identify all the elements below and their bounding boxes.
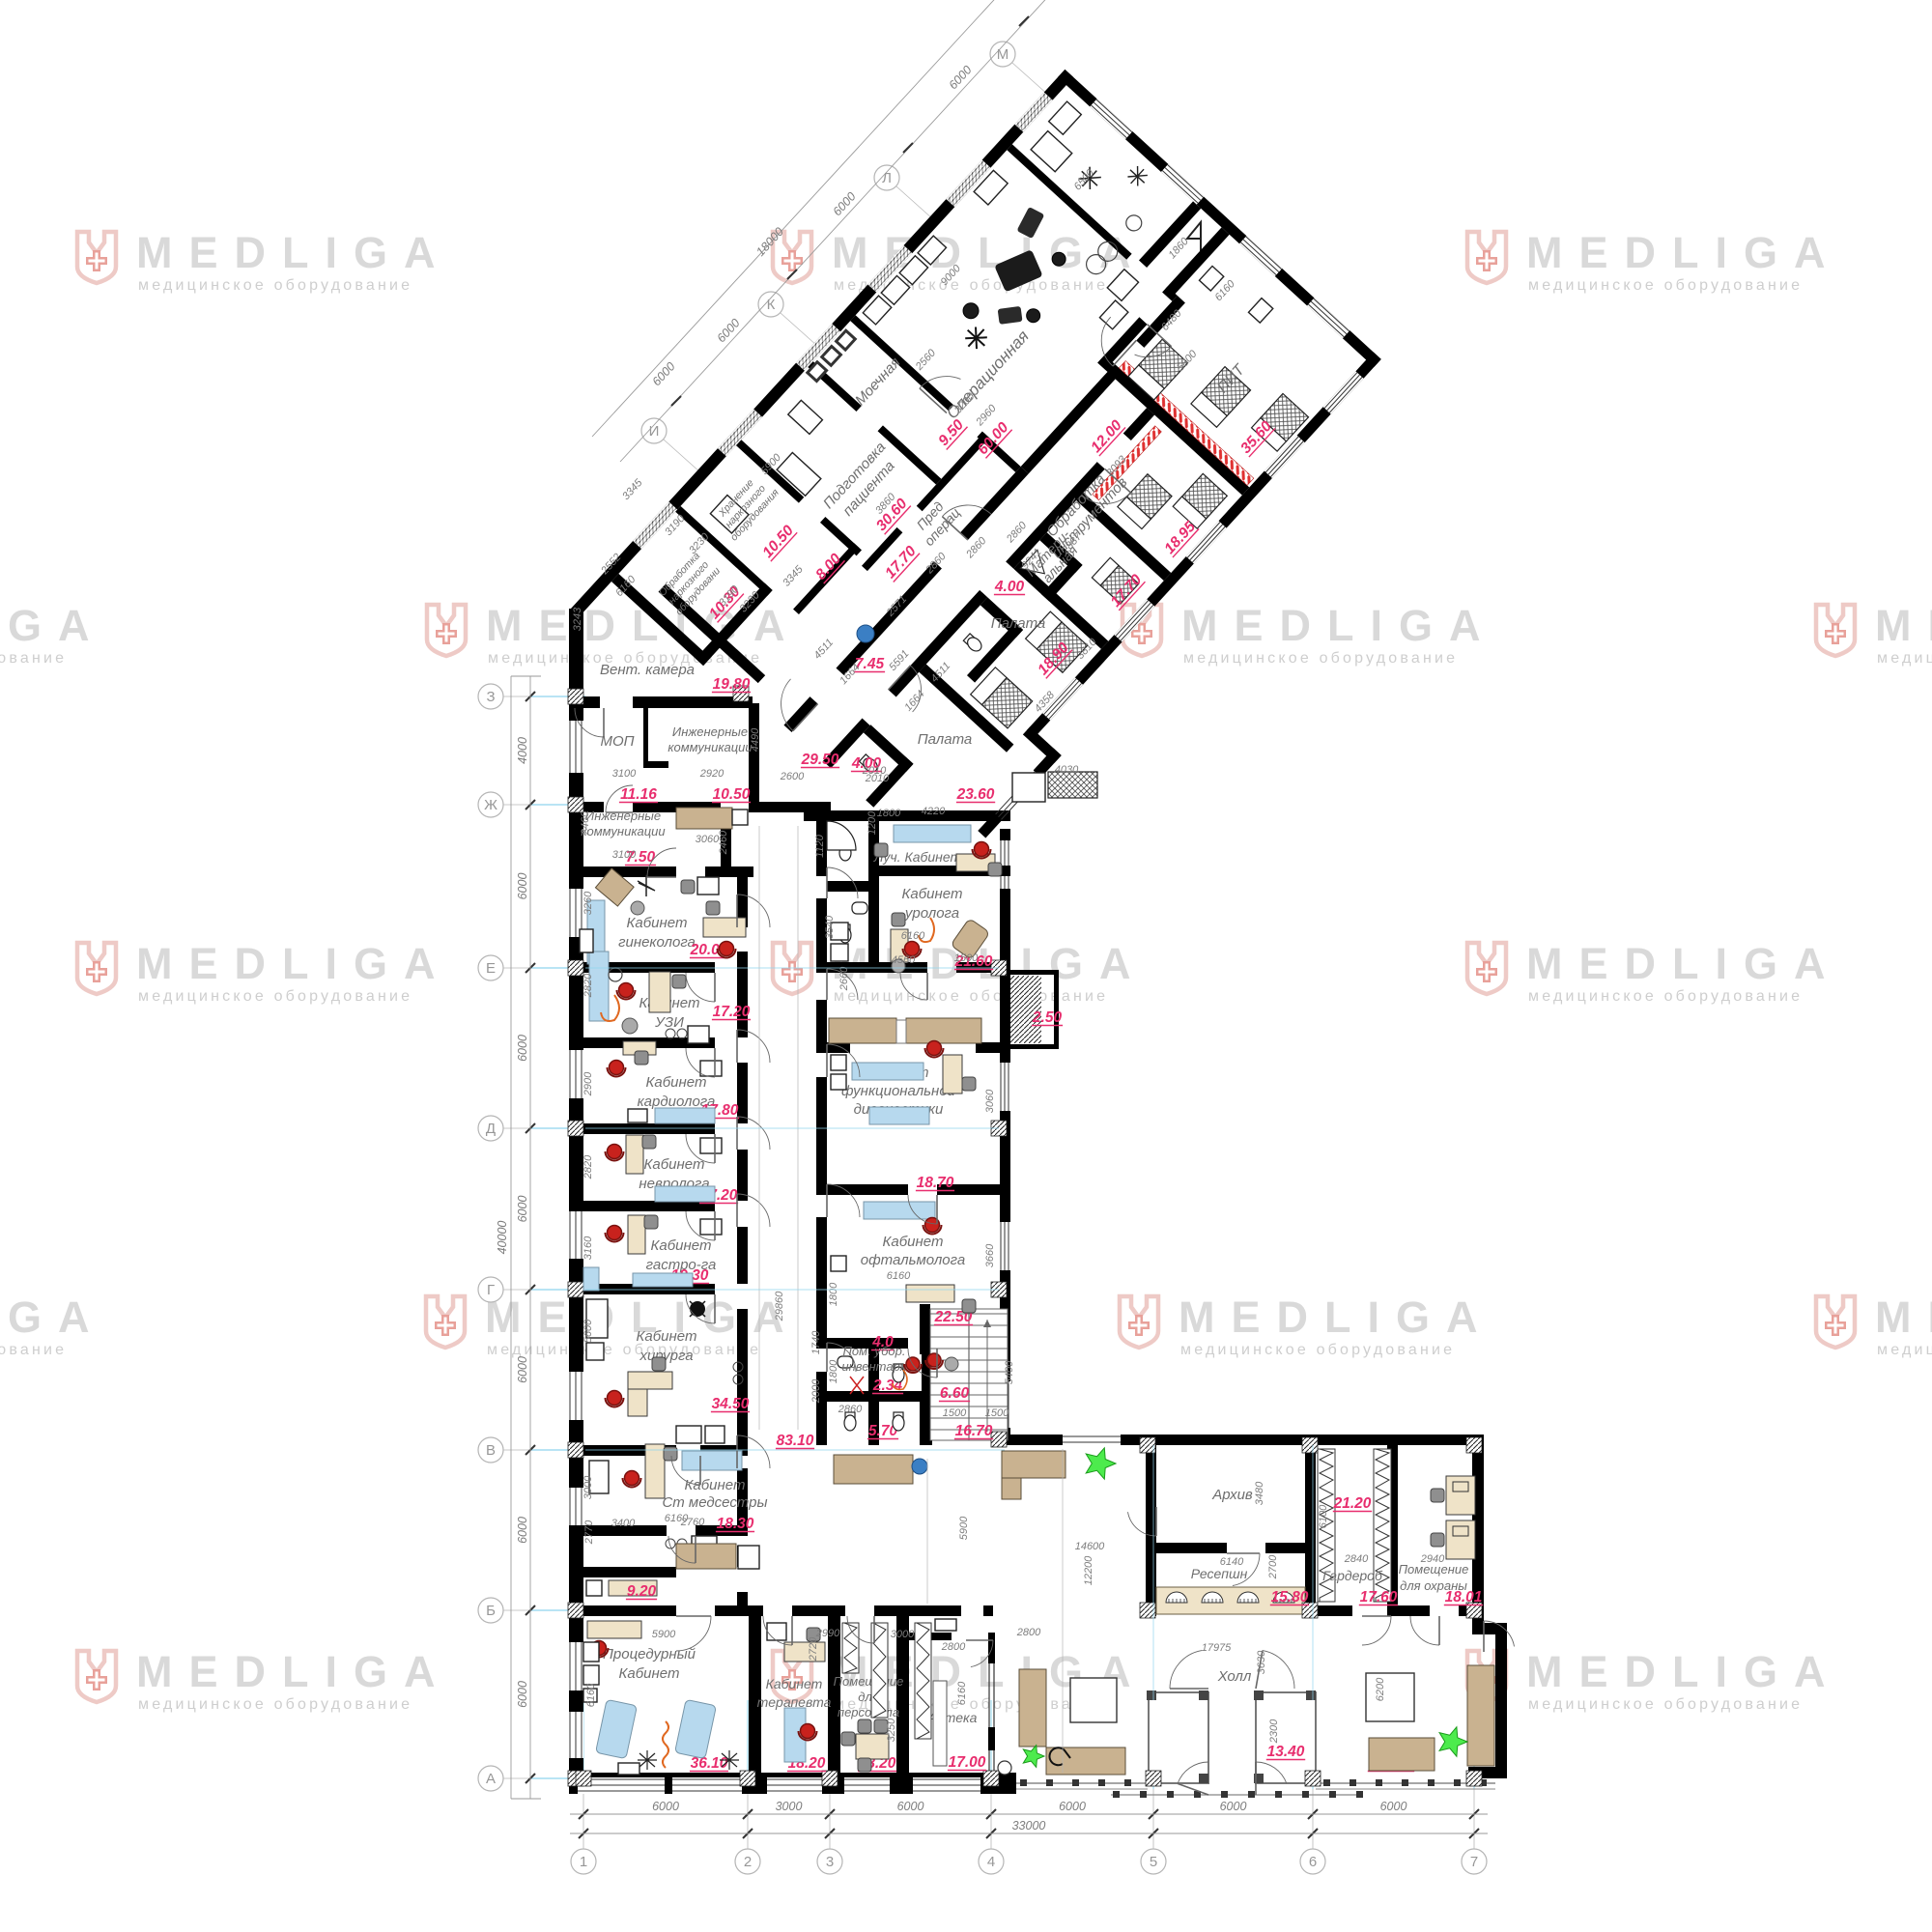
svg-text:2460: 2460 xyxy=(580,810,591,836)
svg-text:МОП: МОП xyxy=(600,733,634,750)
svg-text:2300: 2300 xyxy=(1268,1719,1280,1744)
svg-text:медицинское оборудование: медицинское оборудование xyxy=(1528,1696,1803,1713)
svg-text:Кабинет: Кабинет xyxy=(883,1234,944,1250)
svg-text:3060: 3060 xyxy=(696,834,720,845)
svg-text:15.80: 15.80 xyxy=(1271,1589,1309,1605)
svg-text:3540: 3540 xyxy=(824,915,836,939)
svg-text:Кабинет: Кабинет xyxy=(646,1074,707,1091)
svg-text:2820: 2820 xyxy=(582,973,594,998)
svg-text:19.80: 19.80 xyxy=(713,676,751,693)
svg-text:12200: 12200 xyxy=(1083,1555,1094,1585)
svg-text:3000: 3000 xyxy=(582,1475,594,1499)
svg-text:6000: 6000 xyxy=(1059,1800,1086,1813)
svg-text:Вент. камера: Вент. камера xyxy=(600,662,695,678)
svg-text:коммуникации: коммуникации xyxy=(668,740,752,754)
svg-text:MEDLIGA: MEDLIGA xyxy=(136,939,452,988)
svg-text:гинеколога: гинеколога xyxy=(618,934,696,951)
svg-text:медицинское оборудование: медицинское оборудование xyxy=(1180,1342,1455,1358)
svg-text:2.50: 2.50 xyxy=(1032,1009,1063,1026)
svg-text:6100: 6100 xyxy=(1318,1504,1329,1528)
svg-text:коммуникации: коммуникации xyxy=(581,824,665,838)
svg-text:медицинское оборудование: медицинское оборудование xyxy=(834,988,1108,1005)
svg-text:MEDLIGA: MEDLIGA xyxy=(136,1647,452,1696)
svg-text:3060: 3060 xyxy=(984,1089,996,1113)
svg-text:MEDLIGA: MEDLIGA xyxy=(1181,601,1497,650)
svg-text:Б: Б xyxy=(486,1603,496,1619)
svg-text:2760: 2760 xyxy=(680,1517,705,1528)
svg-text:10.50: 10.50 xyxy=(713,786,751,803)
svg-text:29.50: 29.50 xyxy=(801,752,839,768)
svg-text:1800: 1800 xyxy=(877,808,901,819)
svg-text:6000: 6000 xyxy=(516,1356,529,1383)
svg-text:Кабинет: Кабинет xyxy=(651,1237,712,1254)
svg-text:Д: Д xyxy=(486,1121,496,1137)
svg-text:6000: 6000 xyxy=(516,1517,529,1544)
svg-text:6160: 6160 xyxy=(901,930,925,942)
svg-text:18.30: 18.30 xyxy=(717,1516,754,1532)
svg-text:медицинское оборудование: медицинское оборудование xyxy=(1877,1342,1932,1358)
svg-text:2770: 2770 xyxy=(583,1520,595,1545)
svg-text:6000: 6000 xyxy=(1380,1800,1407,1813)
svg-text:13.40: 13.40 xyxy=(1267,1744,1305,1760)
svg-text:17.60: 17.60 xyxy=(1360,1589,1398,1605)
svg-text:2460: 2460 xyxy=(718,830,729,855)
svg-text:2840: 2840 xyxy=(1344,1553,1369,1565)
svg-text:3000: 3000 xyxy=(891,1629,915,1640)
svg-text:3400: 3400 xyxy=(611,1518,636,1529)
svg-text:34.50: 34.50 xyxy=(712,1396,750,1412)
svg-text:Архив: Архив xyxy=(1211,1487,1253,1503)
svg-text:1500: 1500 xyxy=(985,1407,1009,1419)
svg-text:Пом. убор.: Пом. убор. xyxy=(843,1344,906,1358)
svg-text:16.70: 16.70 xyxy=(955,1423,993,1439)
svg-text:К: К xyxy=(767,297,776,313)
svg-text:медицинское оборудование: медицинское оборудование xyxy=(0,650,67,667)
svg-text:3480: 3480 xyxy=(1254,1481,1265,1505)
svg-text:2720: 2720 xyxy=(808,1636,819,1662)
svg-text:36.10: 36.10 xyxy=(691,1755,728,1772)
svg-text:4000: 4000 xyxy=(516,737,529,764)
svg-text:медицинское оборудование: медицинское оборудование xyxy=(1528,988,1803,1005)
svg-text:Кабинет: Кабинет xyxy=(902,886,963,902)
svg-text:14600: 14600 xyxy=(1075,1541,1105,1552)
svg-text:медицинское оборудование: медицинское оборудование xyxy=(138,1696,412,1713)
svg-text:Процедурный: Процедурный xyxy=(603,1646,696,1662)
svg-text:9.20: 9.20 xyxy=(627,1583,657,1600)
svg-text:Кабинет: Кабинет xyxy=(766,1676,823,1691)
svg-text:17975: 17975 xyxy=(1202,1642,1232,1654)
svg-text:6000: 6000 xyxy=(516,1681,529,1708)
svg-text:MEDLIGA: MEDLIGA xyxy=(136,228,452,277)
svg-text:2700: 2700 xyxy=(1267,1554,1279,1579)
svg-text:персонала: персонала xyxy=(838,1705,899,1719)
svg-text:MEDLIGA: MEDLIGA xyxy=(1526,939,1842,988)
svg-text:Кабинет: Кабинет xyxy=(685,1477,746,1493)
svg-text:MEDLIGA: MEDLIGA xyxy=(1875,1293,1932,1342)
svg-text:6000: 6000 xyxy=(652,1800,679,1813)
svg-text:М: М xyxy=(997,46,1009,63)
svg-text:Ресепшн: Ресепшн xyxy=(1191,1566,1248,1581)
svg-text:MEDLIGA: MEDLIGA xyxy=(0,601,106,650)
svg-text:MEDLIGA: MEDLIGA xyxy=(832,228,1148,277)
svg-text:2900: 2900 xyxy=(582,1071,594,1096)
svg-text:офтальмолога: офтальмолога xyxy=(861,1252,965,1268)
svg-text:2860: 2860 xyxy=(838,1404,863,1415)
svg-text:2940: 2940 xyxy=(1420,1553,1445,1565)
svg-text:6160: 6160 xyxy=(585,1683,597,1707)
svg-text:1500: 1500 xyxy=(943,1407,967,1419)
svg-text:З: З xyxy=(486,689,495,705)
svg-text:Ж: Ж xyxy=(484,797,497,813)
svg-text:40000: 40000 xyxy=(496,1221,509,1255)
svg-text:6000: 6000 xyxy=(516,1196,529,1223)
svg-text:3000: 3000 xyxy=(776,1800,803,1813)
svg-text:MEDLIGA: MEDLIGA xyxy=(0,1293,106,1342)
svg-text:Гардероб: Гардероб xyxy=(1322,1568,1383,1583)
svg-text:медицинское оборудование: медицинское оборудование xyxy=(0,1342,67,1358)
svg-text:Кабинет: Кабинет xyxy=(619,1665,680,1682)
svg-text:Помещение: Помещение xyxy=(834,1674,904,1689)
svg-text:Кабинет: Кабинет xyxy=(644,1156,705,1173)
svg-text:2820: 2820 xyxy=(582,1154,594,1179)
svg-text:Холл: Холл xyxy=(1217,1668,1252,1685)
svg-text:3100: 3100 xyxy=(612,849,637,861)
svg-text:4560: 4560 xyxy=(892,954,916,966)
svg-text:Палата: Палата xyxy=(918,731,973,748)
svg-text:3660: 3660 xyxy=(984,1243,996,1267)
svg-text:1500: 1500 xyxy=(954,952,979,964)
svg-text:1200: 1200 xyxy=(867,810,878,835)
svg-text:медицинское оборудование: медицинское оборудование xyxy=(1528,277,1803,294)
svg-text:2990: 2990 xyxy=(815,1628,840,1639)
svg-text:Инженерные: Инженерные xyxy=(672,724,748,739)
svg-text:3250: 3250 xyxy=(886,1718,897,1742)
svg-text:Е: Е xyxy=(486,960,496,977)
svg-text:6160: 6160 xyxy=(956,1681,968,1705)
svg-text:1: 1 xyxy=(580,1854,587,1870)
svg-text:медицинское оборудование: медицинское оборудование xyxy=(1183,650,1458,667)
svg-text:18.01: 18.01 xyxy=(1445,1589,1483,1605)
svg-text:6140: 6140 xyxy=(1220,1556,1244,1568)
svg-text:33000: 33000 xyxy=(1012,1819,1046,1833)
svg-text:В: В xyxy=(486,1442,496,1459)
svg-text:4490: 4490 xyxy=(750,727,761,752)
svg-text:2600: 2600 xyxy=(780,771,805,782)
svg-text:2800: 2800 xyxy=(941,1641,966,1653)
svg-text:83.10: 83.10 xyxy=(777,1433,814,1449)
svg-text:3260: 3260 xyxy=(582,891,594,915)
svg-text:3160: 3160 xyxy=(582,1236,594,1260)
svg-text:1740: 1740 xyxy=(810,1330,822,1354)
svg-text:7: 7 xyxy=(1470,1854,1478,1870)
svg-text:18.70: 18.70 xyxy=(917,1175,954,1191)
svg-text:MEDLIGA: MEDLIGA xyxy=(1875,601,1932,650)
svg-text:29860: 29860 xyxy=(774,1291,785,1321)
svg-text:5400: 5400 xyxy=(1004,1360,1015,1384)
svg-text:5: 5 xyxy=(1150,1854,1157,1870)
svg-text:медицинское оборудование: медицинское оборудование xyxy=(138,277,412,294)
svg-text:3630: 3630 xyxy=(1256,1650,1267,1674)
svg-text:21.20: 21.20 xyxy=(1333,1495,1372,1512)
svg-text:5900: 5900 xyxy=(958,1516,970,1540)
svg-text:медицинское оборудование: медицинское оборудование xyxy=(487,1342,761,1358)
svg-text:3243: 3243 xyxy=(572,607,583,631)
svg-text:11.16: 11.16 xyxy=(620,786,657,803)
svg-text:3100: 3100 xyxy=(612,768,637,780)
svg-text:2: 2 xyxy=(744,1854,752,1870)
svg-text:Инженерные: Инженерные xyxy=(585,809,661,823)
svg-text:5900: 5900 xyxy=(652,1629,676,1640)
svg-text:6.60: 6.60 xyxy=(940,1385,970,1402)
svg-text:медицинское оборудование: медицинское оборудование xyxy=(138,988,412,1005)
svg-text:MEDLIGA: MEDLIGA xyxy=(1526,228,1842,277)
svg-text:4.00: 4.00 xyxy=(994,579,1025,595)
svg-text:2660: 2660 xyxy=(838,966,850,991)
svg-text:1120: 1120 xyxy=(814,834,826,858)
svg-text:медицинское оборудование: медицинское оборудование xyxy=(1877,650,1932,667)
svg-text:17.20: 17.20 xyxy=(713,1004,751,1020)
svg-text:6000: 6000 xyxy=(516,873,529,900)
svg-text:MEDLIGA: MEDLIGA xyxy=(1526,1647,1842,1696)
svg-text:Кабинет: Кабинет xyxy=(627,915,688,931)
svg-text:2920: 2920 xyxy=(699,768,724,780)
svg-text:УЗИ: УЗИ xyxy=(654,1014,684,1031)
svg-text:6000: 6000 xyxy=(516,1035,529,1062)
svg-text:6000: 6000 xyxy=(1220,1800,1247,1813)
svg-text:6000: 6000 xyxy=(897,1800,924,1813)
svg-text:1800: 1800 xyxy=(828,1359,839,1383)
svg-text:2000: 2000 xyxy=(810,1378,822,1404)
svg-text:3: 3 xyxy=(826,1854,834,1870)
svg-text:4220: 4220 xyxy=(922,806,946,817)
svg-text:6: 6 xyxy=(1309,1854,1317,1870)
svg-text:1800: 1800 xyxy=(828,1282,839,1306)
svg-text:5600: 5600 xyxy=(582,1319,594,1343)
svg-text:23.60: 23.60 xyxy=(956,786,995,803)
svg-text:17.00: 17.00 xyxy=(949,1754,986,1771)
svg-text:А: А xyxy=(486,1771,496,1787)
svg-text:Кабинет: Кабинет xyxy=(637,1328,697,1345)
svg-text:4030: 4030 xyxy=(1055,764,1079,776)
svg-text:6160: 6160 xyxy=(887,1270,911,1282)
svg-text:Палата: Палата xyxy=(991,615,1046,632)
svg-text:функциональной: функциональной xyxy=(841,1083,956,1099)
svg-text:2800: 2800 xyxy=(1016,1627,1041,1638)
svg-text:2010: 2010 xyxy=(865,773,890,784)
svg-text:4: 4 xyxy=(987,1854,995,1870)
svg-text:инвентаря: инвентаря xyxy=(841,1359,906,1374)
svg-text:Г: Г xyxy=(487,1282,495,1298)
svg-text:6200: 6200 xyxy=(1375,1677,1386,1701)
svg-text:MEDLIGA: MEDLIGA xyxy=(1179,1293,1494,1342)
svg-text:Ст медсестры: Ст медсестры xyxy=(662,1494,767,1511)
